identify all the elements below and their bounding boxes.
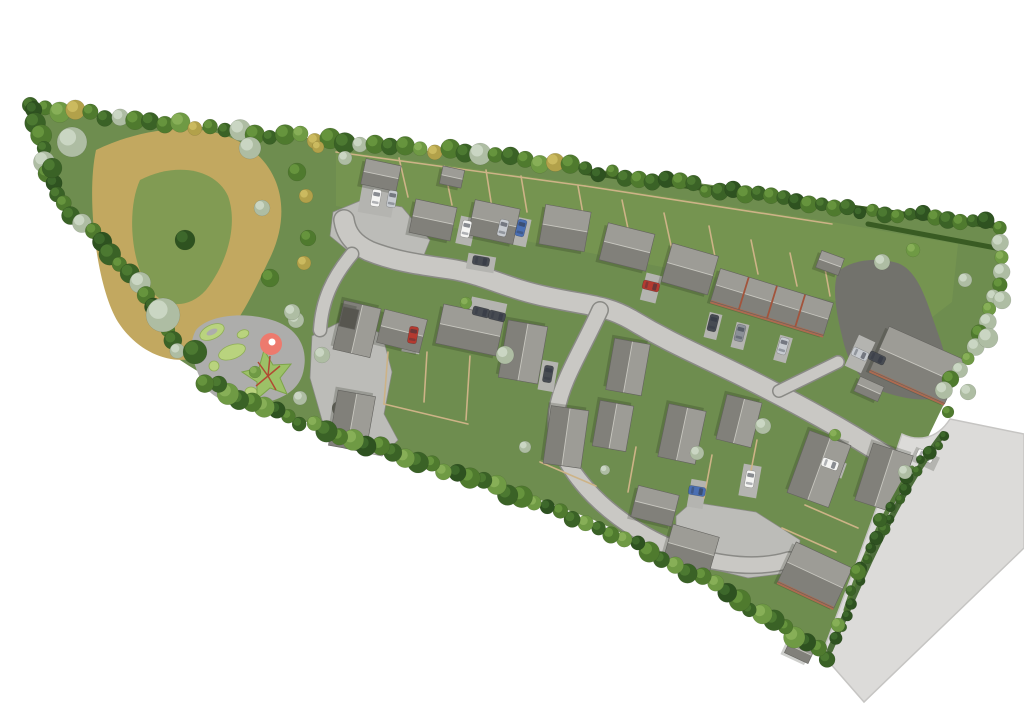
tree-highlight [429,146,437,154]
tree-highlight [285,305,294,314]
roundabout-equipment [269,339,276,346]
tree-highlight [863,555,868,560]
tree-highlight [924,447,932,455]
tree-highlight [994,222,1001,229]
tree-highlight [263,270,273,280]
tree-highlight [983,303,991,311]
tree-highlight [916,206,925,215]
tree-highlight [177,231,188,242]
tree-highlight [907,244,915,252]
tree-highlight [843,611,849,617]
tree-highlight [294,392,302,400]
tree-highlight [935,442,940,447]
tree-highlight [219,124,227,132]
tree-highlight [301,231,310,240]
tree-highlight [101,245,113,257]
tree-highlight [871,532,879,540]
tree-highlight [149,300,168,319]
tree-highlight [968,339,978,349]
tree-highlight [841,200,850,209]
tree-highlight [979,213,988,222]
tree-highlight [963,353,970,360]
house [540,402,589,468]
tree-highlight [830,430,837,437]
tree-highlight [874,514,882,522]
tree-highlight [900,484,907,491]
tree-highlight [752,187,760,195]
tree-highlight [94,233,105,244]
tree-highlight [383,139,393,149]
tree-highlight [886,503,891,508]
tree-highlight [98,111,107,120]
tree-highlight [315,348,324,357]
tree-highlight [601,466,607,472]
tree-highlight [44,159,55,170]
tree-highlight [241,138,253,150]
tree-highlight [994,278,1002,286]
tree-highlight [185,342,198,355]
tree-highlight [562,156,572,166]
tree-highlight [354,138,362,146]
tree-highlight [929,211,938,220]
tree-highlight [457,145,467,155]
tree-highlight [290,164,300,174]
tree-highlight [940,432,945,437]
tree-highlight [461,298,468,305]
tree-highlight [580,162,588,170]
tree-highlight [442,140,453,151]
tree-highlight [917,456,922,461]
tree-highlight [298,257,306,265]
tree-highlight [74,215,84,225]
tree-highlight [321,129,333,141]
tree-highlight [63,208,73,218]
play-mound [209,361,219,371]
tree-highlight [498,347,508,357]
tree-highlight [954,215,963,224]
tree-highlight [937,383,947,393]
tree-highlight [38,142,46,150]
tree-highlight [953,363,962,372]
house [535,204,591,255]
tree-highlight [367,136,377,146]
tree-highlight [520,442,527,449]
tree-highlight [607,165,614,172]
tree-highlight [503,148,513,158]
tree-highlight [51,188,60,197]
tree-highlight [158,117,167,126]
tree-highlight [122,265,133,276]
tree-highlight [26,114,38,126]
tree-highlight [548,154,558,164]
tree-highlight [618,171,627,180]
tree-highlight [673,174,682,183]
tree-highlight [632,172,641,181]
tree-highlight [592,168,600,176]
tree-highlight [778,191,786,199]
tree-highlight [113,258,121,266]
tree-highlight [961,385,970,394]
tree-highlight [980,329,991,340]
tree-highlight [764,189,773,198]
tree-highlight [308,417,316,425]
tree-highlight [659,172,668,181]
tree-highlight [875,255,884,264]
tree-highlight [968,215,975,222]
tree-highlight [84,105,93,114]
tree-highlight [143,113,153,123]
tree-highlight [127,112,138,123]
tree-highlight [993,235,1003,245]
tree-highlight [189,122,197,130]
tree-highlight [204,120,212,128]
tree-highlight [940,212,950,222]
tree-highlight [846,586,852,592]
tree-highlight [247,126,258,137]
tree-highlight [554,504,562,512]
tree-highlight [541,500,549,508]
tree-highlight [687,176,696,185]
tree-highlight [802,197,812,207]
tree-highlight [264,131,272,139]
tree-highlight [27,102,36,111]
tree-highlight [632,537,640,545]
tree-highlight [255,201,264,210]
tree-highlight [32,126,44,138]
tree-highlight [892,210,900,218]
tree-highlight [691,447,699,455]
tree-highlight [593,522,601,530]
tree-highlight [489,148,497,156]
tree-highlight [816,198,823,205]
tree-highlight [712,184,722,194]
tree-highlight [51,103,62,114]
tree-highlight [336,134,348,146]
tree-highlight [996,251,1004,259]
tree-highlight [851,565,860,574]
tree-highlight [339,152,347,160]
tree-highlight [313,142,320,149]
tree-highlight [645,175,654,184]
tree-highlight [943,407,950,414]
tree-highlight [981,314,991,324]
tree-highlight [913,467,919,473]
site-plan-image [0,0,1024,723]
tree-highlight [131,273,143,285]
tree-highlight [67,101,78,112]
tree-highlight [855,207,862,214]
tree-highlight [397,138,407,148]
tree-highlight [172,114,183,125]
tree-highlight [250,367,257,374]
tree-highlight [701,186,708,193]
tree-highlight [171,344,179,352]
tree-highlight [60,129,77,146]
tree-highlight [738,187,748,197]
development-site-plan-render [0,0,1024,723]
tree-highlight [899,466,907,474]
tree-highlight [231,121,243,133]
tree-highlight [905,209,912,216]
tree-highlight [831,633,838,640]
tree-highlight [943,372,952,381]
tree-highlight [57,196,66,205]
tree-highlight [790,194,799,203]
tree-highlight [896,495,901,500]
tree-highlight [518,152,527,161]
tree-highlight [827,201,836,210]
tree-highlight [294,127,303,136]
tree-highlight [847,599,853,605]
tree-highlight [994,264,1003,273]
tree-highlight [471,144,483,156]
tree-highlight [277,126,288,137]
tree-highlight [959,274,967,282]
tree-highlight [866,543,872,549]
tree-highlight [867,205,874,212]
tree-highlight [756,419,765,428]
tree-highlight [165,332,175,342]
tree-highlight [87,224,96,233]
tree-highlight [532,156,542,166]
tree-highlight [878,208,887,217]
tree-highlight [726,182,735,191]
tree-highlight [300,190,308,198]
tree-highlight [139,287,149,297]
tree-highlight [113,110,122,119]
tree-highlight [832,619,840,627]
tree-highlight [197,376,207,386]
tree-highlight [414,142,422,150]
tree-highlight [995,292,1005,302]
